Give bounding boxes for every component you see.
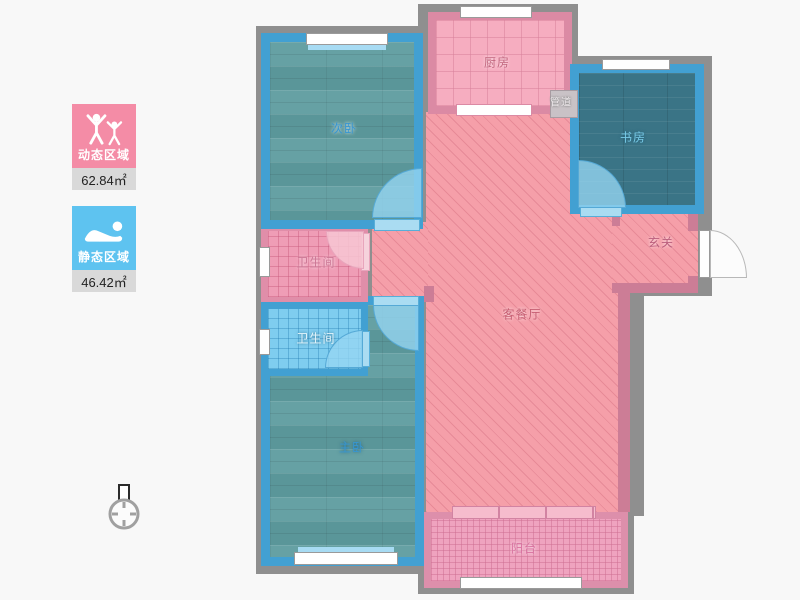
sleeping-person-icon — [81, 218, 127, 248]
window-bathroom-upper — [259, 247, 270, 277]
hallway-floor[interactable] — [372, 222, 428, 298]
door-threshold-study — [580, 207, 622, 217]
room-label-kitchen: 厨房 — [484, 54, 510, 71]
room-label-bathroom-lower: 卫生间 — [296, 330, 335, 347]
window-bathroom-lower — [259, 329, 270, 355]
window-master-bedroom — [294, 552, 398, 565]
room-label-master-bedroom: 主卧 — [339, 439, 365, 456]
kitchen-sliding-door — [456, 104, 532, 116]
window-secondary-bedroom — [306, 33, 388, 45]
wall-hallway-corner-stub — [424, 286, 434, 302]
wall-foyer-bottom — [612, 283, 698, 293]
room-label-bathroom-upper: 卫生间 — [296, 254, 335, 271]
door-threshold-secondary-bedroom — [374, 219, 420, 231]
wall-living-right — [618, 290, 630, 512]
room-label-duct: 管道 — [550, 94, 572, 109]
compass-icon — [96, 482, 152, 538]
entrance-door-leaf — [699, 230, 710, 278]
room-label-foyer: 玄关 — [648, 234, 674, 251]
room-label-balcony: 阳台 — [511, 540, 537, 557]
room-label-living-dining: 客餐厅 — [502, 306, 541, 323]
wall-foyer-right-upper — [688, 212, 698, 231]
window-kitchen — [460, 6, 532, 18]
legend-dynamic-label: 动态区域 — [78, 146, 130, 163]
window-study — [602, 59, 670, 70]
room-label-study: 书房 — [620, 129, 646, 146]
legend-dynamic-value: 62.84㎡ — [72, 168, 136, 190]
window-sill — [308, 45, 386, 50]
legend-static-card[interactable]: 静态区域 — [72, 206, 136, 270]
legend-dynamic-card[interactable]: 动态区域 — [72, 104, 136, 168]
legend-static-value: 46.42㎡ — [72, 270, 136, 292]
people-icon — [81, 112, 127, 146]
room-label-secondary-bedroom: 次卧 — [331, 120, 357, 137]
legend-static-label: 静态区域 — [78, 248, 130, 265]
entrance-door-arc — [710, 230, 747, 278]
window-balcony — [460, 577, 582, 589]
balcony-sliding-door — [452, 506, 596, 519]
